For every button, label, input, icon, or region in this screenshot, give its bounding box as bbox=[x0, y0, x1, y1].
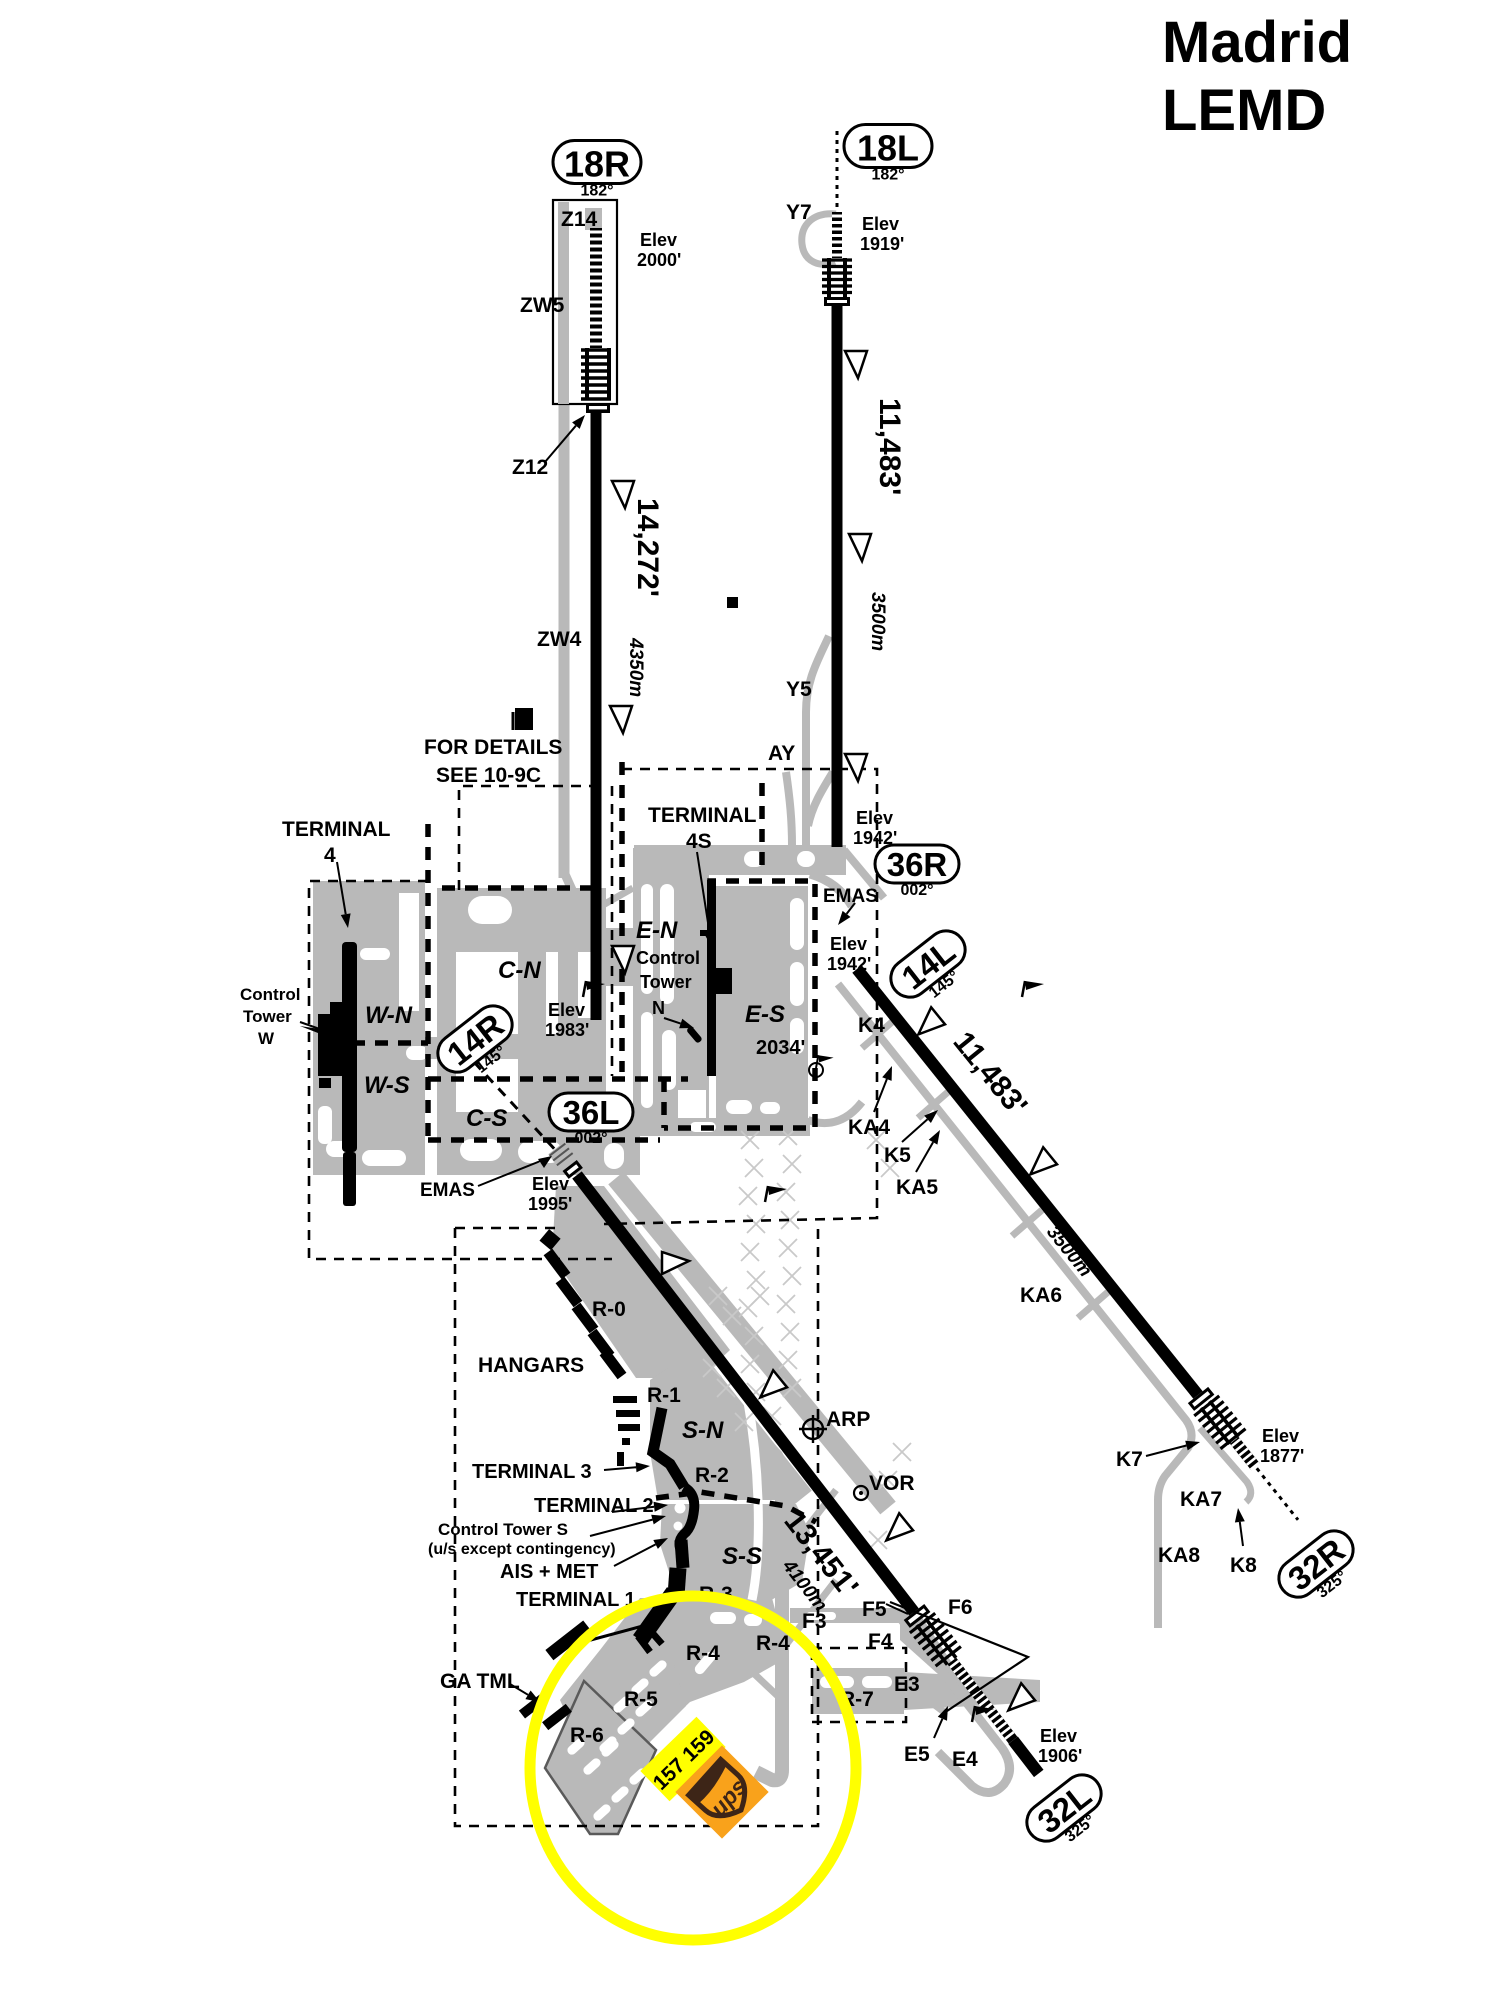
svg-text:4350m: 4350m bbox=[625, 637, 646, 697]
svg-text:Y7: Y7 bbox=[786, 201, 812, 224]
svg-text:R-5: R-5 bbox=[624, 1688, 658, 1711]
svg-text:K7: K7 bbox=[1116, 1448, 1143, 1471]
svg-text:S-S: S-S bbox=[722, 1543, 762, 1570]
svg-text:E4: E4 bbox=[952, 1748, 978, 1771]
svg-text:GA TML: GA TML bbox=[440, 1670, 520, 1693]
svg-text:AY: AY bbox=[768, 742, 795, 765]
svg-text:C-S: C-S bbox=[466, 1105, 507, 1132]
svg-text:3500m: 3500m bbox=[867, 592, 888, 651]
svg-text:Elev: Elev bbox=[548, 1000, 585, 1020]
svg-text:N: N bbox=[652, 998, 665, 1018]
svg-text:EMAS: EMAS bbox=[420, 1180, 475, 1201]
svg-text:Elev: Elev bbox=[640, 230, 677, 250]
svg-text:2034': 2034' bbox=[756, 1037, 805, 1059]
svg-text:EMAS: EMAS bbox=[823, 886, 878, 907]
svg-text:VOR: VOR bbox=[869, 1472, 915, 1495]
svg-text:F3: F3 bbox=[802, 1610, 827, 1633]
svg-text:K5: K5 bbox=[884, 1144, 911, 1167]
svg-text:F6: F6 bbox=[948, 1596, 973, 1619]
svg-text:36L: 36L bbox=[563, 1094, 620, 1131]
svg-text:002°: 002° bbox=[900, 882, 933, 899]
svg-text:Control Tower S: Control Tower S bbox=[438, 1520, 568, 1539]
svg-text:11,483': 11,483' bbox=[873, 398, 906, 495]
svg-text:R-2: R-2 bbox=[695, 1464, 729, 1487]
svg-text:KA4: KA4 bbox=[848, 1116, 890, 1139]
svg-text:SEE 10-9C: SEE 10-9C bbox=[436, 764, 541, 787]
svg-text:ZW5: ZW5 bbox=[520, 294, 565, 317]
svg-text:2000': 2000' bbox=[637, 250, 681, 270]
svg-text:Elev: Elev bbox=[532, 1174, 569, 1194]
svg-text:E5: E5 bbox=[904, 1743, 930, 1766]
svg-text:KA7: KA7 bbox=[1180, 1488, 1222, 1511]
svg-text:AIS + MET: AIS + MET bbox=[500, 1561, 598, 1583]
svg-text:W-N: W-N bbox=[365, 1002, 413, 1029]
svg-text:18R: 18R bbox=[564, 144, 630, 185]
svg-text:ARP: ARP bbox=[826, 1408, 870, 1431]
svg-text:K8: K8 bbox=[1230, 1554, 1257, 1577]
svg-text:4: 4 bbox=[324, 844, 336, 867]
svg-text:Tower: Tower bbox=[640, 972, 692, 992]
svg-text:S-N: S-N bbox=[682, 1417, 724, 1444]
svg-text:36R: 36R bbox=[887, 846, 948, 883]
svg-text:182°: 182° bbox=[871, 167, 904, 184]
svg-text:Elev: Elev bbox=[856, 808, 893, 828]
svg-text:(u/s except contingency): (u/s except contingency) bbox=[428, 1541, 616, 1558]
svg-text:1919': 1919' bbox=[860, 234, 904, 254]
svg-text:E-N: E-N bbox=[636, 917, 678, 944]
svg-text:Tower: Tower bbox=[243, 1007, 292, 1026]
svg-text:KA6: KA6 bbox=[1020, 1284, 1062, 1307]
svg-text:F5: F5 bbox=[862, 1598, 887, 1621]
svg-text:1983': 1983' bbox=[545, 1020, 589, 1040]
svg-text:ZW4: ZW4 bbox=[537, 628, 582, 651]
svg-text:Madrid: Madrid bbox=[1162, 10, 1352, 75]
svg-text:R-6: R-6 bbox=[570, 1724, 604, 1747]
svg-text:TERMINAL 3: TERMINAL 3 bbox=[472, 1461, 592, 1483]
svg-text:E3: E3 bbox=[894, 1673, 920, 1696]
svg-text:R-4: R-4 bbox=[686, 1642, 720, 1665]
svg-text:Z12: Z12 bbox=[512, 456, 548, 479]
svg-text:LEMD: LEMD bbox=[1162, 78, 1326, 143]
svg-text:R-1: R-1 bbox=[647, 1384, 681, 1407]
svg-text:Elev: Elev bbox=[1040, 1726, 1077, 1746]
svg-text:Elev: Elev bbox=[830, 934, 867, 954]
svg-text:Elev: Elev bbox=[862, 214, 899, 234]
svg-text:KA5: KA5 bbox=[896, 1176, 938, 1199]
svg-text:14,272': 14,272' bbox=[631, 498, 664, 597]
svg-text:C-N: C-N bbox=[498, 957, 541, 984]
svg-text:W-S: W-S bbox=[364, 1072, 410, 1099]
svg-text:4S: 4S bbox=[686, 830, 712, 853]
svg-text:TERMINAL 2: TERMINAL 2 bbox=[534, 1495, 654, 1517]
svg-text:Control: Control bbox=[240, 985, 300, 1004]
svg-text:Elev: Elev bbox=[1262, 1426, 1299, 1446]
svg-text:KA8: KA8 bbox=[1158, 1544, 1200, 1567]
svg-text:TERMINAL: TERMINAL bbox=[282, 818, 391, 841]
svg-text:TERMINAL 1: TERMINAL 1 bbox=[516, 1589, 636, 1611]
svg-text:Y5: Y5 bbox=[786, 678, 812, 701]
svg-text:18L: 18L bbox=[857, 128, 919, 169]
svg-text:W: W bbox=[258, 1029, 275, 1048]
svg-text:Control: Control bbox=[636, 948, 700, 968]
svg-text:F4: F4 bbox=[868, 1630, 893, 1653]
svg-text:HANGARS: HANGARS bbox=[478, 1354, 584, 1377]
svg-text:1906': 1906' bbox=[1038, 1746, 1082, 1766]
svg-text:1942': 1942' bbox=[827, 954, 871, 974]
svg-text:TERMINAL: TERMINAL bbox=[648, 804, 757, 827]
svg-text:FOR DETAILS: FOR DETAILS bbox=[424, 736, 562, 759]
svg-text:Z14: Z14 bbox=[561, 208, 598, 231]
svg-text:R-4: R-4 bbox=[756, 1632, 790, 1655]
svg-text:1995': 1995' bbox=[528, 1194, 572, 1214]
svg-text:1877': 1877' bbox=[1260, 1446, 1304, 1466]
svg-text:R-0: R-0 bbox=[592, 1298, 626, 1321]
svg-text:K4: K4 bbox=[858, 1014, 885, 1037]
svg-text:002°: 002° bbox=[574, 1130, 607, 1147]
svg-text:E-S: E-S bbox=[745, 1001, 785, 1028]
svg-text:182°: 182° bbox=[580, 183, 613, 200]
